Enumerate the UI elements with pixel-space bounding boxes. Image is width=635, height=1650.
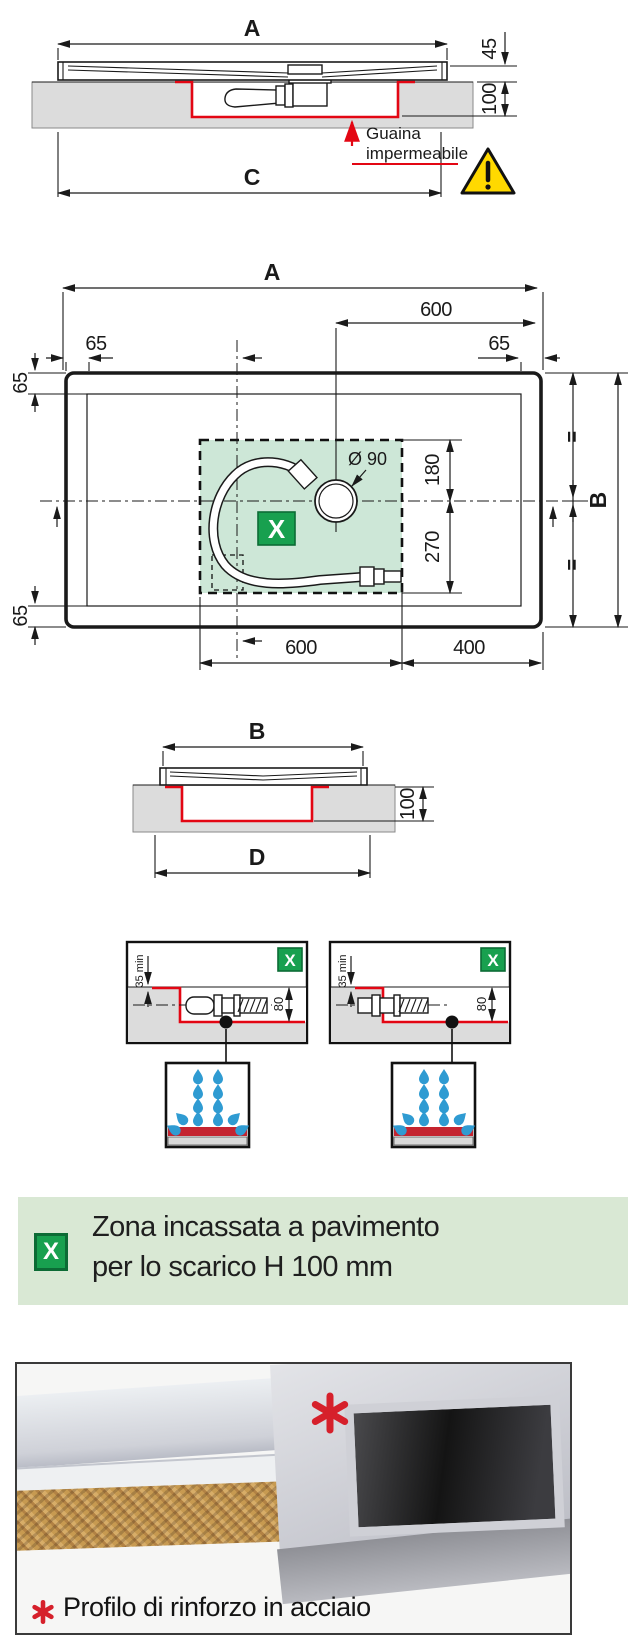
tray-profile [58, 62, 447, 80]
warning-icon [462, 149, 514, 193]
legend-text: Zona incassata a pavimento per lo scaric… [92, 1207, 439, 1287]
detail-left-dim-80-label: 80 [271, 997, 286, 1011]
profile-photo: Profilo di rinforzo in acciaio [15, 1362, 572, 1635]
detail-left-badge: X [278, 948, 302, 971]
detail-right-badge-label: X [487, 951, 499, 970]
detail-right-dim-35-label: 35 min [337, 954, 349, 987]
note-line1: Guaina [366, 124, 421, 143]
legend-line1: Zona incassata a pavimento [92, 1207, 439, 1247]
dim-label-d: D [249, 844, 266, 870]
water-box-left [164, 1063, 251, 1147]
detail-left-dim-35-label: 35 min [134, 954, 146, 987]
legend-x-badge: X [34, 1233, 68, 1271]
dim-label-45: 45 [479, 38, 501, 60]
diameter-label: Ø 90 [348, 449, 387, 469]
zone-badge: X [258, 512, 295, 545]
water-box-right [390, 1063, 477, 1147]
photo-chipboard-layer [15, 1481, 303, 1551]
cross-section-top: A C 45 100 Guaina impermeabile [0, 0, 635, 240]
detail-boxes: 35 min 80 X [0, 935, 635, 1155]
detail-right-badge: X [481, 948, 505, 971]
plan-dim-180-label: 180 [422, 454, 444, 486]
steel-profile-opening [344, 1395, 565, 1536]
photo-caption: Profilo di rinforzo in acciaio [63, 1592, 371, 1623]
tray-profile-2 [160, 768, 367, 785]
plan-dim-65-top-left: 65 [46, 333, 113, 371]
dim-label-100: 100 [479, 83, 501, 115]
detail-right: 35 min 80 X [330, 942, 510, 1147]
dim-label-c: C [244, 164, 261, 190]
detail-left: 35 min 80 X [127, 942, 307, 1147]
detail-right-dim-80-label: 80 [474, 997, 489, 1011]
cross-section-bottom: B 100 D [0, 700, 635, 890]
plan-equal-bottom: = [562, 559, 584, 570]
plan-view: X Ø 90 A 600 65 65 65 [0, 250, 635, 690]
technical-sheet: A C 45 100 Guaina impermeabile [0, 0, 635, 1650]
plan-dim-65-lb-label: 65 [10, 605, 32, 627]
plan-dim-b-label: B [585, 492, 611, 509]
legend-banner: X Zona incassata a pavimento per lo scar… [18, 1197, 628, 1305]
plan-dim-65-tr-label: 65 [488, 333, 510, 355]
plan-dim-65-top-right: 65 [478, 333, 560, 371]
plan-dim-400-label: 400 [453, 637, 485, 659]
dimension-b2: B [163, 718, 363, 766]
plan-dim-a-label: A [264, 259, 281, 285]
caption-asterisk-icon [31, 1600, 55, 1624]
floor-slab-2 [133, 785, 395, 832]
detail-left-dot [220, 1016, 233, 1029]
pipe-elbow-drawing [186, 995, 267, 1016]
dimension-d: D [155, 835, 370, 878]
note-line2: impermeabile [366, 144, 468, 163]
plan-dim-a: A [63, 259, 543, 370]
dimension-a: A [58, 15, 447, 60]
legend-line2: per lo scarico H 100 mm [92, 1247, 439, 1287]
dim-label-100-2: 100 [397, 788, 419, 820]
drain-circle [315, 480, 357, 522]
detail-left-badge-label: X [284, 951, 296, 970]
pipe-straight-drawing [358, 995, 428, 1016]
plan-dim-270-label: 270 [422, 531, 444, 563]
plan-dim-65-tl-label: 65 [85, 333, 107, 355]
plan-dim-600-top: 600 [336, 299, 535, 323]
detail-right-dot [446, 1016, 459, 1029]
zone-badge-label: X [268, 514, 286, 544]
plan-dim-65-lt-label: 65 [10, 372, 32, 394]
plan-dim-b: B [585, 373, 618, 627]
plan-dim-600-top-label: 600 [420, 299, 452, 321]
photo-asterisk-icon [309, 1392, 351, 1434]
plan-equal-top: = [562, 431, 584, 442]
plan-dim-600-bottom-label: 600 [285, 637, 317, 659]
floor-recess-2 [182, 786, 312, 821]
dim-label-b2: B [249, 718, 266, 744]
dim-label-a: A [244, 15, 261, 41]
